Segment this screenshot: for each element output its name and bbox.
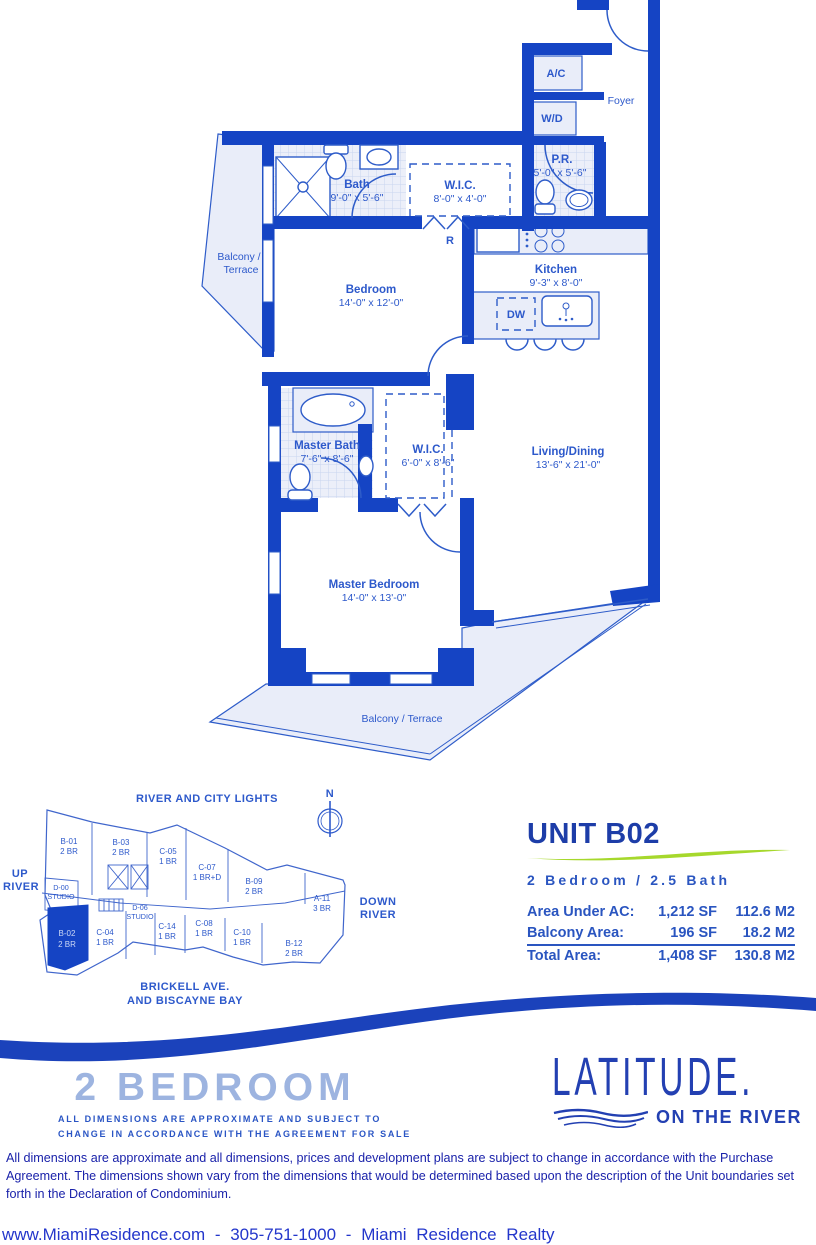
fine-print-line-1: ALL DIMENSIONS ARE APPROXIMATE AND SUBJE… bbox=[58, 1113, 372, 1125]
svg-text:2 BR: 2 BR bbox=[58, 940, 76, 949]
svg-text:2 BR: 2 BR bbox=[245, 887, 263, 896]
svg-text:B-03: B-03 bbox=[113, 838, 130, 847]
walls bbox=[222, 0, 660, 686]
svg-text:B-09: B-09 bbox=[246, 877, 263, 886]
spec-table: Area Under AC: 1,212 SF 112.6 M2 Balcony… bbox=[527, 902, 795, 967]
sink-icon-bath bbox=[360, 145, 398, 169]
unit-info-panel: UNIT B02 2 Bedroom / 2.5 Bath Area Under… bbox=[527, 818, 795, 967]
svg-text:1 BR: 1 BR bbox=[158, 932, 176, 941]
svg-text:1 BR+D: 1 BR+D bbox=[193, 873, 221, 882]
logo-wordmark: LATITUDE. bbox=[552, 1046, 707, 1108]
contact-footer: www.MiamiResidence.com - 305-751-1000 - … bbox=[2, 1225, 554, 1245]
svg-text:STUDIO: STUDIO bbox=[126, 912, 154, 921]
balcony-top-label-2: Terrace bbox=[223, 264, 258, 276]
logo-waves-icon bbox=[552, 1106, 648, 1128]
svg-text:2 BR: 2 BR bbox=[285, 949, 303, 958]
room-dims-pr: 5'-0" x 5'-6" bbox=[534, 167, 587, 179]
spec-sf: 1,408 SF bbox=[645, 946, 717, 967]
shower-stall bbox=[276, 157, 330, 218]
kitchen-sink bbox=[542, 296, 592, 326]
svg-text:C-04: C-04 bbox=[96, 928, 114, 937]
room-dims-wic2: 6'-0" x 8'-6" bbox=[402, 457, 455, 469]
room-label-master-bath: Master Bath bbox=[294, 440, 360, 452]
keyplan-edge-top: RIVER AND CITY LIGHTS bbox=[136, 793, 278, 805]
svg-text:1 BR: 1 BR bbox=[159, 857, 177, 866]
spec-row-total: Total Area: 1,408 SF 130.8 M2 bbox=[527, 944, 795, 967]
svg-text:C-08: C-08 bbox=[195, 919, 213, 928]
compass-icon: N bbox=[318, 788, 342, 837]
spec-m2: 112.6 M2 bbox=[717, 902, 795, 923]
balcony-bottom-label: Balcony / Terrace bbox=[362, 713, 443, 725]
room-dims-master-bath: 7'-6" x 8'-6" bbox=[301, 453, 354, 465]
room-dims-kitchen: 9'-3" x 8'-0" bbox=[530, 277, 583, 289]
svg-text:1 BR: 1 BR bbox=[96, 938, 114, 947]
keyplan-edge-right-1: DOWN bbox=[360, 896, 397, 908]
svg-text:1 BR: 1 BR bbox=[233, 938, 251, 947]
spec-m2: 130.8 M2 bbox=[717, 946, 795, 967]
spec-label: Area Under AC: bbox=[527, 902, 645, 923]
spec-m2: 18.2 M2 bbox=[717, 923, 795, 944]
unit-subtitle: 2 Bedroom / 2.5 Bath bbox=[527, 872, 795, 888]
fine-print-line-2: CHANGE IN ACCORDANCE WITH THE AGREEMENT … bbox=[58, 1128, 372, 1140]
sink-icon-pr bbox=[566, 190, 592, 210]
spec-row-balcony: Balcony Area: 196 SF 18.2 M2 bbox=[527, 923, 795, 944]
room-label-bedroom: Bedroom bbox=[346, 284, 396, 296]
closet-chevrons bbox=[398, 217, 469, 516]
keyplan-edge-left-1: UP bbox=[12, 868, 28, 880]
svg-text:B-12: B-12 bbox=[286, 939, 303, 948]
svg-text:C-07: C-07 bbox=[198, 863, 216, 872]
svg-text:C-14: C-14 bbox=[158, 922, 176, 931]
svg-text:D-00: D-00 bbox=[53, 883, 69, 892]
toilet-icon-master-bath bbox=[288, 464, 312, 500]
fridge-label: R bbox=[446, 235, 454, 247]
room-dims-bath: 9'-0" x 5'-6" bbox=[331, 192, 384, 204]
legal-disclaimer: All dimensions are approximate and all d… bbox=[6, 1150, 806, 1204]
svg-text:C-05: C-05 bbox=[159, 847, 177, 856]
svg-text:N: N bbox=[326, 788, 334, 800]
room-label-living: Living/Dining bbox=[532, 446, 605, 458]
wd-label: W/D bbox=[541, 113, 562, 125]
room-dims-master-bedroom: 14'-0" x 13'-0" bbox=[342, 592, 407, 604]
room-dims-living: 13'-6" x 21'-0" bbox=[536, 459, 601, 471]
room-label-foyer: Foyer bbox=[608, 95, 635, 107]
spec-sf: 196 SF bbox=[645, 923, 717, 944]
svg-text:C-10: C-10 bbox=[233, 928, 251, 937]
room-dims-wic1: 8'-0" x 4'-0" bbox=[434, 193, 487, 205]
latitude-logo: LATITUDE. ON THE RIVER bbox=[552, 1046, 802, 1128]
toilet-icon-bath bbox=[324, 145, 348, 179]
floorplan-page: Foyer Bath 9'-0" x 5'-6" W.I.C. 8'-0" x … bbox=[0, 0, 816, 1245]
room-label-wic2: W.I.C. bbox=[412, 444, 443, 456]
room-label-wic1: W.I.C. bbox=[444, 180, 475, 192]
ac-label: A/C bbox=[547, 68, 566, 80]
room-label-bath: Bath bbox=[344, 179, 370, 191]
fridge-cabinet bbox=[477, 225, 519, 252]
spec-sf: 1,212 SF bbox=[645, 902, 717, 923]
spec-label: Total Area: bbox=[527, 946, 645, 967]
room-label-kitchen: Kitchen bbox=[535, 264, 577, 276]
balcony-top-label-1: Balcony / bbox=[217, 251, 260, 263]
room-label-pr: P.R. bbox=[552, 154, 573, 166]
room-label-master-bedroom: Master Bedroom bbox=[329, 579, 420, 591]
sink-icon-master-bath bbox=[359, 456, 373, 476]
toilet-icon-pr bbox=[535, 180, 555, 214]
dw-label: DW bbox=[507, 309, 526, 321]
keyplan-edge-left-2: RIVER bbox=[3, 881, 39, 893]
plan-type-title: 2 BEDROOM bbox=[58, 1066, 372, 1110]
room-dims-bedroom: 14'-0" x 12'-0" bbox=[339, 297, 404, 309]
svg-text:STUDIO: STUDIO bbox=[47, 892, 75, 901]
svg-text:A-11: A-11 bbox=[314, 894, 331, 903]
svg-text:1 BR: 1 BR bbox=[195, 929, 213, 938]
keyplan-edge-right-2: RIVER bbox=[360, 909, 396, 921]
svg-text:2 BR: 2 BR bbox=[60, 847, 78, 856]
svg-text:D-06: D-06 bbox=[132, 903, 148, 912]
svg-text:B-01: B-01 bbox=[61, 837, 78, 846]
svg-text:3 BR: 3 BR bbox=[313, 904, 331, 913]
logo-subtitle: ON THE RIVER bbox=[656, 1107, 802, 1128]
floor-plan-drawing: Foyer Bath 9'-0" x 5'-6" W.I.C. 8'-0" x … bbox=[0, 0, 816, 782]
island-stools bbox=[506, 339, 584, 350]
svg-text:B-02: B-02 bbox=[59, 929, 76, 938]
spec-row-ac: Area Under AC: 1,212 SF 112.6 M2 bbox=[527, 902, 795, 923]
spec-label: Balcony Area: bbox=[527, 923, 645, 944]
svg-text:2 BR: 2 BR bbox=[112, 848, 130, 857]
plan-type-block: 2 BEDROOM ALL DIMENSIONS ARE APPROXIMATE… bbox=[58, 1066, 372, 1140]
